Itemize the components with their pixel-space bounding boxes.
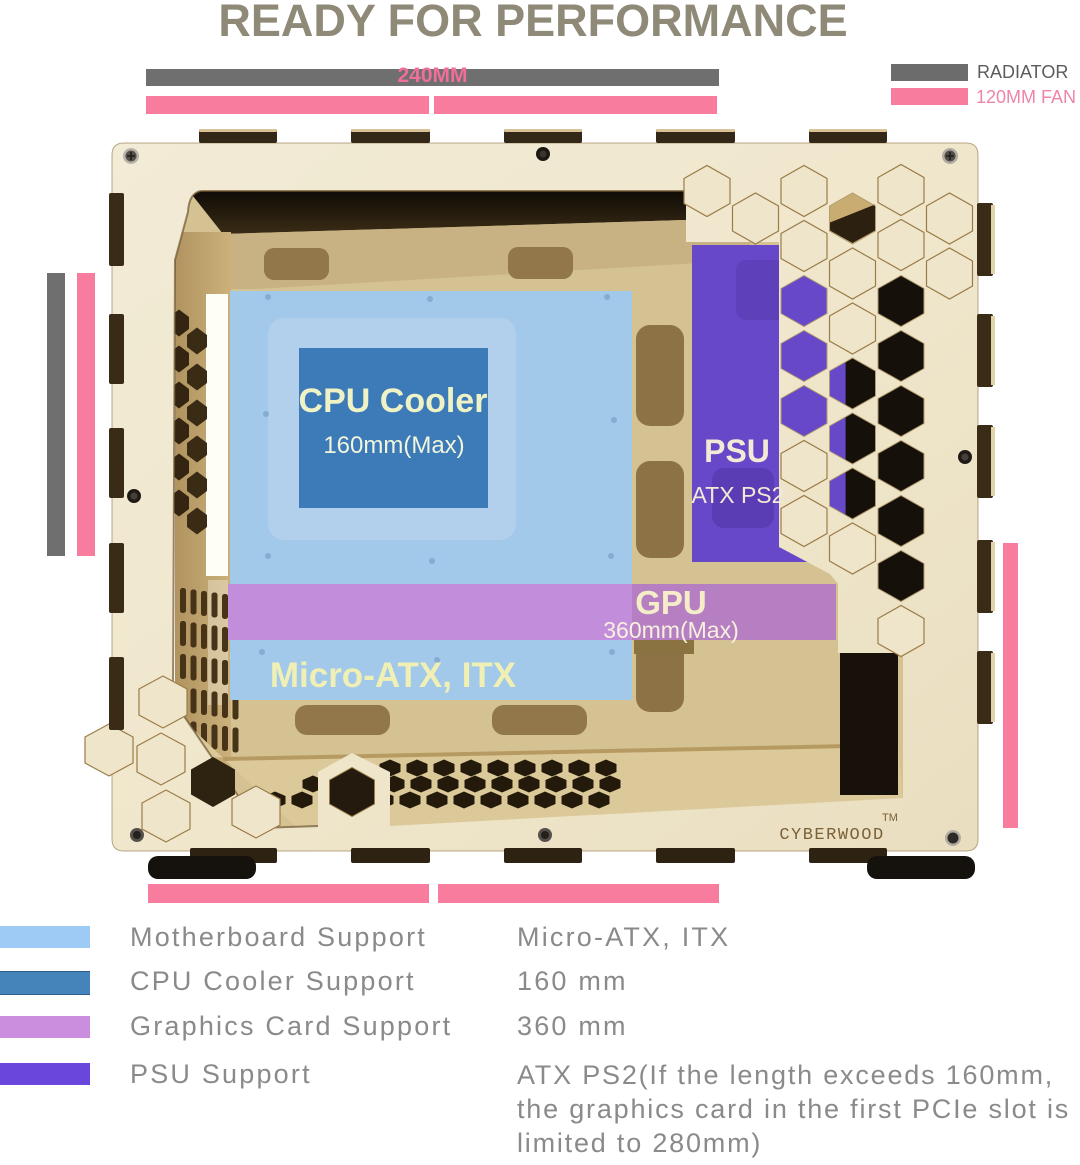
svg-text:GPU: GPU [635, 584, 707, 621]
svg-text:CPU Cooler: CPU Cooler [299, 382, 488, 420]
svg-text:TM: TM [882, 812, 898, 824]
svg-text:CYBERWOOD: CYBERWOOD [779, 826, 884, 845]
svg-text:ATX PS2: ATX PS2 [692, 482, 785, 508]
svg-text:160mm(Max): 160mm(Max) [323, 432, 464, 459]
svg-text:PSU: PSU [704, 433, 770, 469]
svg-text:Micro-ATX, ITX: Micro-ATX, ITX [270, 656, 517, 695]
svg-text:360mm(Max): 360mm(Max) [603, 617, 738, 643]
